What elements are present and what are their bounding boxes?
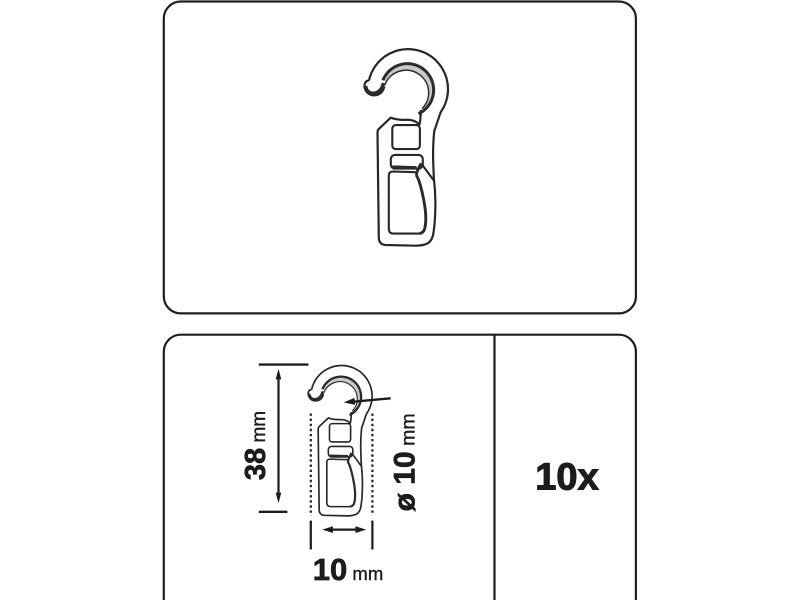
svg-text:10x: 10x: [535, 456, 598, 498]
